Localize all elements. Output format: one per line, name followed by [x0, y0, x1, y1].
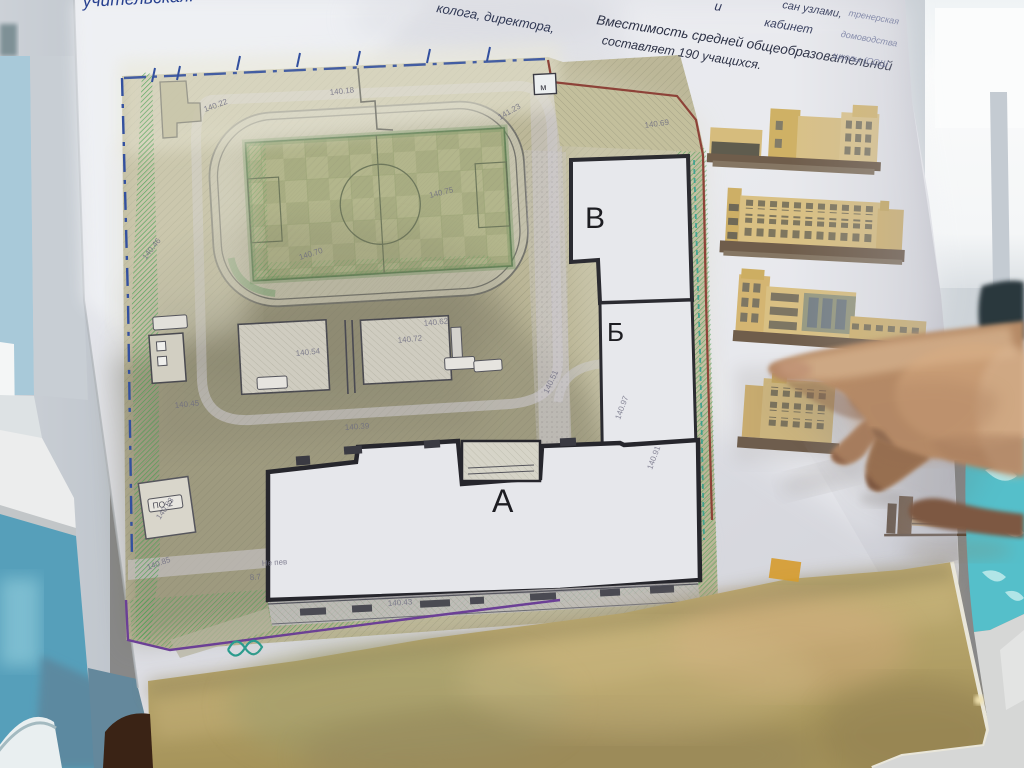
svg-text:м: м: [540, 82, 547, 92]
svg-text:Не пев: Не пев: [262, 557, 288, 568]
svg-text:8.7: 8.7: [250, 572, 262, 582]
svg-text:140.43: 140.43: [388, 597, 414, 608]
svg-text:А: А: [492, 483, 514, 519]
svg-text:140.39: 140.39: [345, 421, 371, 432]
svg-text:Б: Б: [607, 317, 624, 347]
svg-text:В: В: [585, 202, 605, 235]
